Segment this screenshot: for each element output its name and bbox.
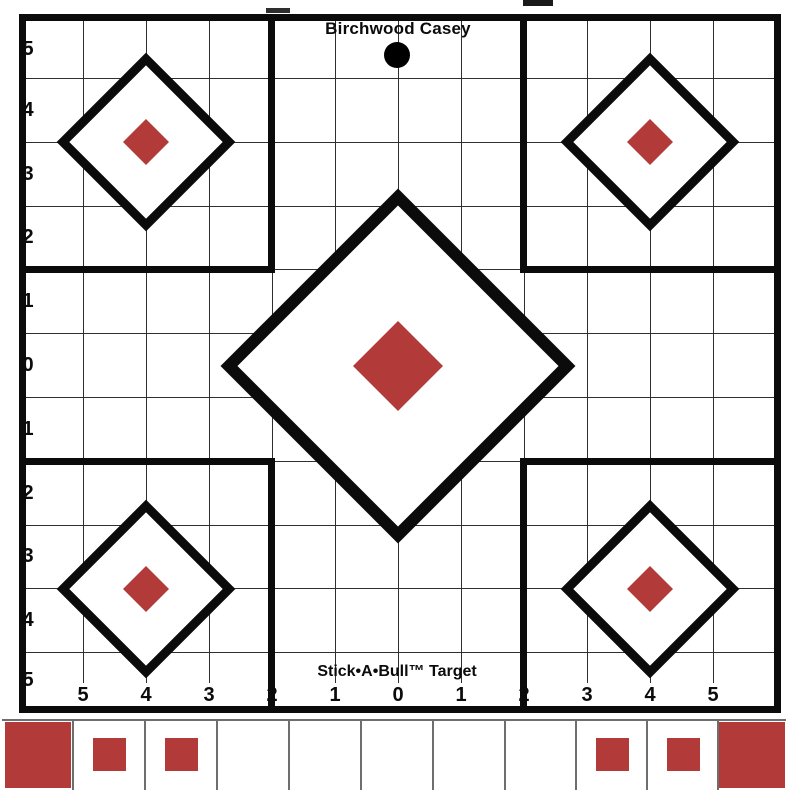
left-axis-label: 0 — [17, 354, 39, 376]
patch-square-small — [93, 738, 126, 771]
left-axis-label: 1 — [17, 418, 39, 440]
strip-divider — [216, 719, 218, 790]
strip-divider — [432, 719, 434, 790]
bottom-axis-label: 0 — [383, 684, 413, 706]
left-axis-label: 5 — [17, 669, 39, 691]
left-axis-label: 4 — [17, 99, 39, 121]
left-axis-label: 3 — [17, 163, 39, 185]
bottom-axis-label: 2 — [509, 684, 539, 706]
patch-square-large — [5, 722, 71, 788]
strip-divider — [288, 719, 290, 790]
target-sheet: 5432101234554321012345 Birchwood Casey S… — [0, 0, 800, 800]
patch-square-small — [667, 738, 700, 771]
left-axis-label: 1 — [17, 290, 39, 312]
bottom-axis-label: 3 — [572, 684, 602, 706]
patch-square-small — [596, 738, 629, 771]
bottom-axis-label: 5 — [68, 684, 98, 706]
strip-divider — [504, 719, 506, 790]
bottom-axis-label: 1 — [320, 684, 350, 706]
left-axis-label: 4 — [17, 609, 39, 631]
left-axis-label: 3 — [17, 545, 39, 567]
bottom-axis-label: 4 — [635, 684, 665, 706]
strip-divider — [72, 719, 74, 790]
left-axis-label: 5 — [17, 38, 39, 60]
print-artifact-mark — [266, 8, 290, 13]
strip-divider — [360, 719, 362, 790]
strip-divider — [646, 719, 648, 790]
print-artifact-mark — [523, 0, 553, 6]
patch-square-large — [719, 722, 785, 788]
bottom-axis-label: 3 — [194, 684, 224, 706]
patch-square-small — [165, 738, 198, 771]
strip-divider — [575, 719, 577, 790]
bottom-axis-label: 4 — [131, 684, 161, 706]
brand-title: Birchwood Casey — [298, 19, 498, 39]
strip-top-line — [2, 719, 786, 721]
strip-divider — [144, 719, 146, 790]
bottom-axis-label: 5 — [698, 684, 728, 706]
aim-dot-icon — [384, 42, 410, 68]
bottom-axis-label: 1 — [446, 684, 476, 706]
left-axis-label: 2 — [17, 226, 39, 248]
product-title: Stick•A•Bull™ Target — [297, 662, 497, 682]
left-axis-label: 2 — [17, 482, 39, 504]
bottom-axis-label: 2 — [257, 684, 287, 706]
